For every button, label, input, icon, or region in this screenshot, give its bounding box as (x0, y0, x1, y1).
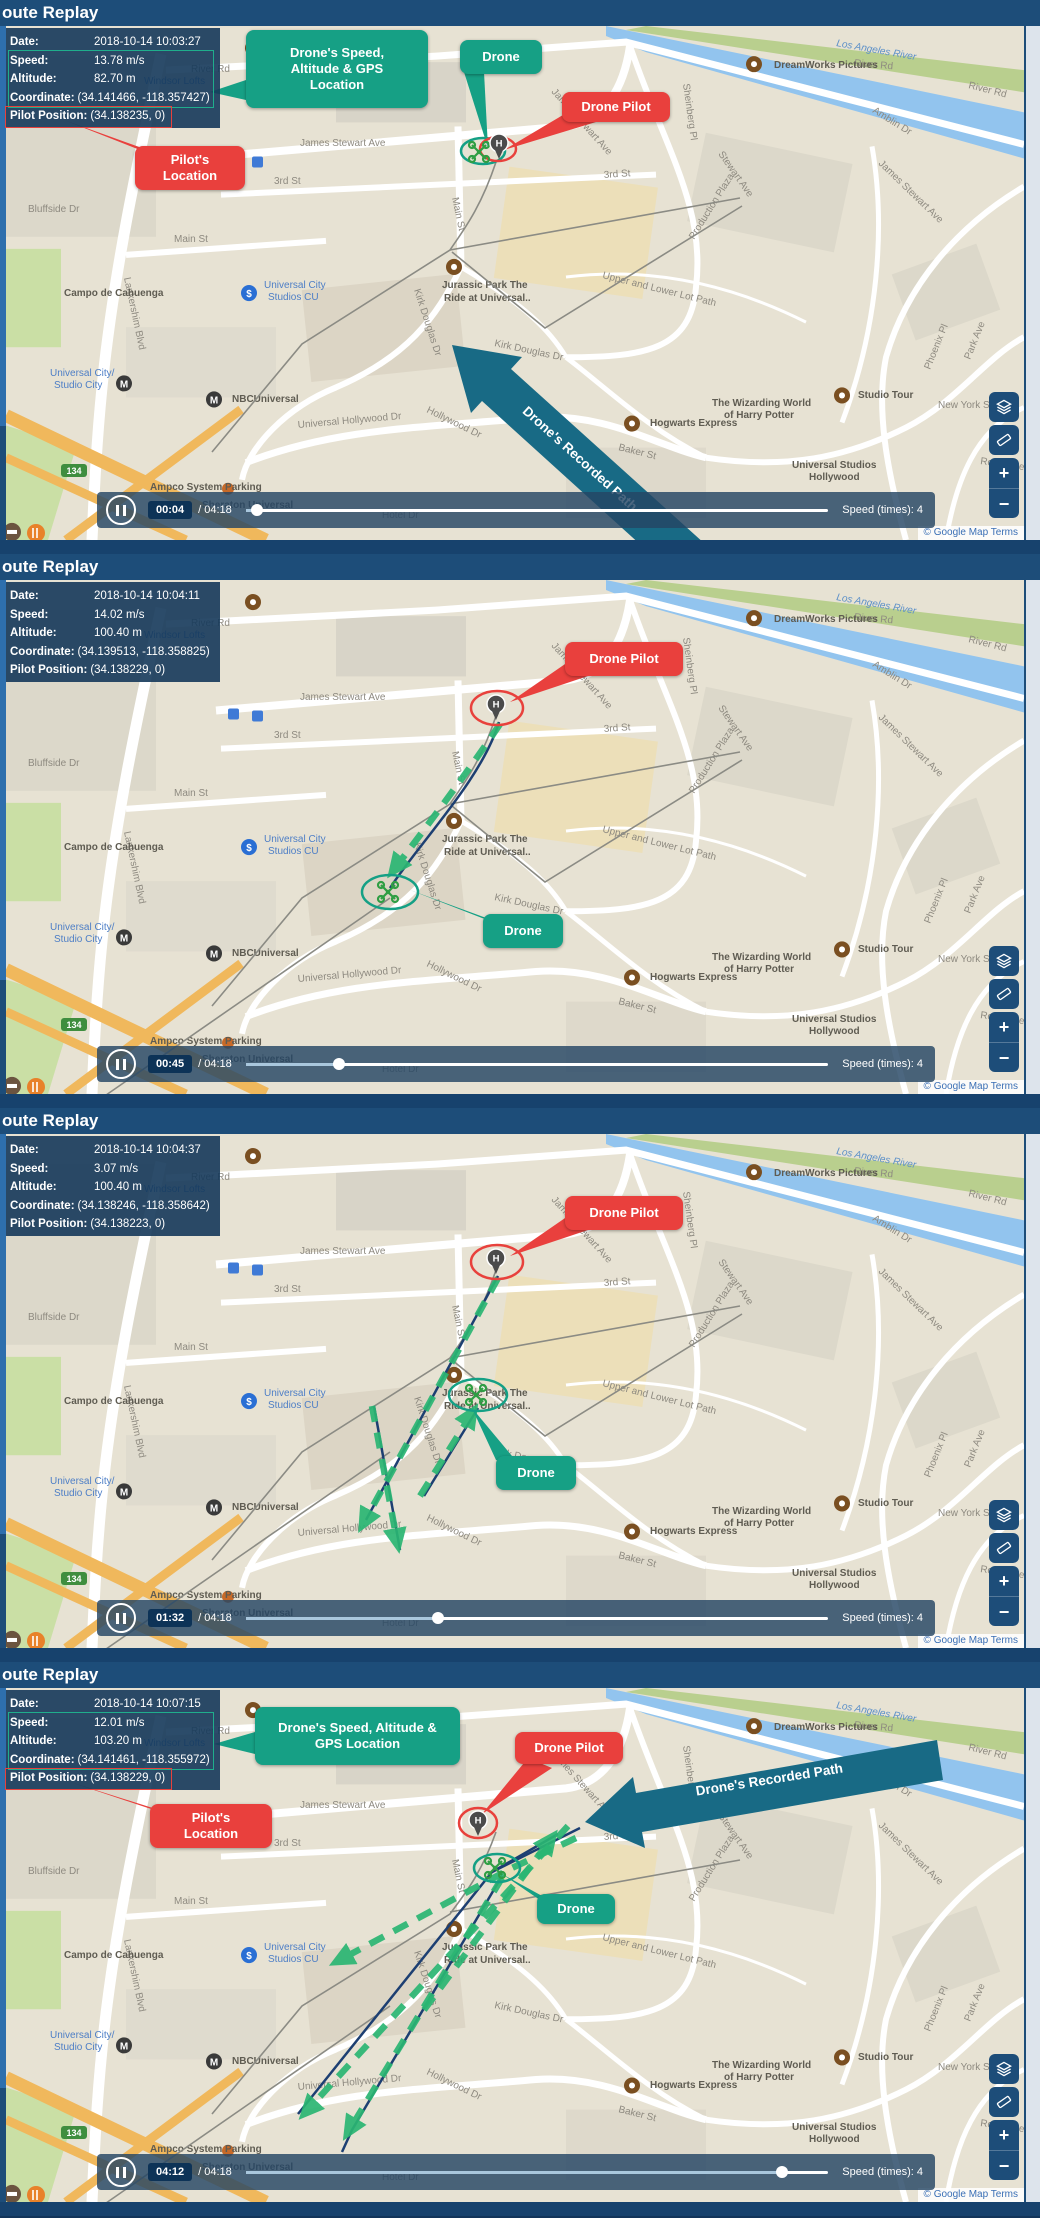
map-controls: + − (989, 1500, 1019, 1626)
date-value: 2018-10-14 10:04:11 (94, 590, 200, 602)
map-label: Studios CU (268, 846, 319, 857)
pause-button[interactable] (106, 2157, 136, 2187)
measure-button[interactable] (989, 1533, 1019, 1563)
layers-icon (993, 2058, 1015, 2080)
map-label: Hollywood (809, 1026, 860, 1037)
measure-button[interactable] (989, 979, 1019, 1009)
map-label: Ride at Universal.. (444, 847, 531, 858)
map-attribution[interactable]: © Google Map Terms (918, 1634, 1024, 1648)
telemetry-panel: Date:2018-10-14 10:04:37 Speed:3.07 m/s … (6, 1136, 220, 1236)
map-label: NBCUniversal (232, 948, 299, 959)
map-label: Main St (174, 1342, 208, 1353)
measure-button[interactable] (989, 425, 1019, 455)
map-label: New York St (938, 400, 993, 411)
pilot-position-value: (34.138229, 0) (90, 1772, 165, 1784)
map-label: 3rd St (603, 168, 631, 181)
zoom-in-button[interactable]: + (989, 458, 1019, 489)
map-label: Hollywood (809, 1580, 860, 1591)
route-replay-panel-1: oute Replay River RdLos Angeles RiverRiv… (0, 0, 1040, 554)
scrollbar-strip[interactable] (1026, 580, 1040, 1094)
window-title: oute Replay (0, 0, 1040, 26)
map-label: Studio City (54, 2042, 102, 2053)
map-label: Hollywood (809, 2134, 860, 2145)
speed-value: 13.78 m/s (94, 55, 145, 67)
map-attribution[interactable]: © Google Map Terms (918, 1080, 1024, 1094)
svg-text:H: H (493, 1254, 500, 1265)
zoom-out-button[interactable]: − (989, 1043, 1019, 1072)
ruler-icon (993, 983, 1015, 1005)
map-label: Universal City/ (50, 368, 115, 379)
total-duration: / 04:18 (198, 2166, 232, 2178)
speed-value: 14.02 m/s (94, 609, 145, 621)
zoom-out-button[interactable]: − (989, 2151, 1019, 2180)
speed-gps-callout: Drone's Speed, Altitude & GPS Location (246, 30, 428, 108)
map-label: Universal Studios (792, 2122, 877, 2133)
map-label: Main St (174, 1896, 208, 1907)
highway-shield: 134 (61, 1572, 87, 1585)
window-title: oute Replay (0, 554, 1040, 580)
svg-text:H: H (475, 1816, 482, 1827)
map-label: Jurassic Park The (442, 834, 528, 845)
map-label: Bluffside Dr (28, 1312, 80, 1323)
speed-value: 3.07 m/s (94, 1163, 138, 1175)
map-label: James Stewart Ave (300, 1246, 386, 1257)
pilot-position-value: (34.138223, 0) (90, 1218, 165, 1230)
panel-bottom-border (0, 540, 1040, 554)
layers-button[interactable] (989, 392, 1019, 422)
svg-text:H: H (493, 700, 500, 711)
drone-pilot-callout: Drone Pilot (565, 642, 683, 676)
map-label: New York St (938, 1508, 993, 1519)
coordinate-value: (34.138246, -118.358642) (78, 1200, 210, 1212)
map-label: New York St (938, 954, 993, 965)
map-label: 3rd St (274, 1838, 301, 1849)
map-label: Universal City (264, 1942, 326, 1953)
map-label: NBCUniversal (232, 2056, 299, 2067)
map-label: Studios CU (268, 292, 319, 303)
timeline-slider[interactable] (246, 1063, 829, 1066)
zoom-out-button[interactable]: − (989, 489, 1019, 518)
highway-shield: 134 (61, 2126, 87, 2139)
map-label: DreamWorks Pictures (774, 60, 878, 71)
speed-multiplier-label: Speed (times): 4 (842, 1612, 923, 1624)
map-label: Universal City/ (50, 922, 115, 933)
coordinate-value: (34.141466, -118.357427) (78, 92, 210, 104)
telemetry-panel: Date:2018-10-14 10:03:27 Speed:13.78 m/s… (6, 28, 220, 128)
altitude-value: 82.70 m (94, 73, 136, 85)
map-label: The Wizarding World (712, 2060, 811, 2071)
layers-button[interactable] (989, 946, 1019, 976)
layers-icon (993, 396, 1015, 418)
map-attribution[interactable]: © Google Map Terms (918, 2188, 1024, 2202)
map-label: Studio Tour (858, 2052, 913, 2063)
slider-thumb[interactable] (333, 1058, 345, 1070)
map-label: Studio City (54, 380, 102, 391)
map-label: 3rd St (603, 1276, 631, 1289)
pilot-position-value: (34.138235, 0) (90, 110, 165, 122)
map-controls: + − (989, 392, 1019, 518)
map-label: NBCUniversal (232, 394, 299, 405)
pilot-location-callout: Pilot's Location (150, 1804, 272, 1848)
pause-button[interactable] (106, 1603, 136, 1633)
speed-multiplier-label: Speed (times): 4 (842, 1058, 923, 1070)
map-label: Studio City (54, 934, 102, 945)
map-label: Universal City (264, 834, 326, 845)
telemetry-panel: Date:2018-10-14 10:07:15 Speed:12.01 m/s… (6, 1690, 220, 1790)
map-label: DreamWorks Pictures (774, 1168, 878, 1179)
map-label: Universal Studios (792, 460, 877, 471)
map-label: Jurassic Park The (442, 280, 528, 291)
map-controls: + − (989, 946, 1019, 1072)
elapsed-time: 00:45 (148, 1055, 192, 1073)
drone-pilot-callout: Drone Pilot (562, 92, 670, 122)
svg-text:H: H (496, 139, 503, 150)
map-label: Campo de Cahuenga (64, 288, 164, 299)
layers-button[interactable] (989, 2054, 1019, 2084)
scrollbar-strip[interactable] (1026, 1688, 1040, 2202)
slider-thumb[interactable] (251, 504, 263, 516)
timeline-slider[interactable] (246, 509, 829, 512)
drone-callout: Drone (483, 914, 563, 948)
map-label: Campo de Cahuenga (64, 842, 164, 853)
slider-thumb[interactable] (432, 1612, 444, 1624)
map-label: 3rd St (274, 730, 301, 741)
highway-shield: 134 (61, 464, 87, 477)
playback-bar: 01:32 / 04:18 Speed (times): 4 (97, 1600, 935, 1636)
pause-button[interactable] (106, 495, 136, 525)
map-label: James Stewart Ave (300, 138, 386, 149)
zoom-out-button[interactable]: − (989, 1597, 1019, 1626)
map-label: DreamWorks Pictures (774, 614, 878, 625)
timeline-slider[interactable] (246, 2171, 829, 2174)
map-label: Universal City/ (50, 2030, 115, 2041)
map-label: Campo de Cahuenga (64, 1950, 164, 1961)
map-label: Studios CU (268, 1400, 319, 1411)
map-label: Hogwarts Express (650, 1526, 738, 1537)
map-label: James Stewart Ave (300, 1800, 386, 1811)
ruler-icon (993, 2091, 1015, 2113)
map-label: Universal City (264, 280, 326, 291)
drone-pilot-callout: Drone Pilot (565, 1196, 683, 1230)
pilot-location-callout: Pilot's Location (135, 146, 245, 190)
map-label: Universal City/ (50, 1476, 115, 1487)
coordinate-value: (34.141461, -118.355972) (78, 1754, 210, 1766)
total-duration: / 04:18 (198, 1058, 232, 1070)
drone-pilot-callout: Drone Pilot (515, 1732, 623, 1764)
total-duration: / 04:18 (198, 1612, 232, 1624)
map-label: Hogwarts Express (650, 2080, 738, 2091)
map-label: Main St (174, 788, 208, 799)
route-replay-panel-2: oute Replay River RdLos Angeles RiverRiv… (0, 554, 1040, 1108)
panel-bottom-border (0, 2202, 1040, 2216)
telemetry-panel: Date:2018-10-14 10:04:11 Speed:14.02 m/s… (6, 582, 220, 682)
altitude-value: 100.40 m (94, 627, 142, 639)
scrollbar-strip[interactable] (1026, 26, 1040, 540)
zoom-in-button[interactable]: + (989, 2120, 1019, 2151)
map-label: DreamWorks Pictures (774, 1722, 878, 1733)
map-label: Universal Studios (792, 1568, 877, 1579)
svg-text:134: 134 (66, 466, 81, 476)
svg-text:134: 134 (66, 1574, 81, 1584)
map-label: 3rd St (274, 176, 301, 187)
map-label: Bluffside Dr (28, 204, 80, 215)
window-title: oute Replay (0, 1108, 1040, 1134)
scrollbar-strip[interactable] (1026, 1134, 1040, 1648)
date-value: 2018-10-14 10:07:15 (94, 1698, 201, 1710)
speed-multiplier-label: Speed (times): 4 (842, 504, 923, 516)
map-label: Universal City (264, 1388, 326, 1399)
drone-callout: Drone (460, 40, 542, 74)
total-duration: / 04:18 (198, 504, 232, 516)
panel-bottom-border (0, 1648, 1040, 1662)
zoom-in-button[interactable]: + (989, 1566, 1019, 1597)
map-controls: + − (989, 2054, 1019, 2180)
route-replay-panel-3: oute Replay River RdLos Angeles RiverRiv… (0, 1108, 1040, 1662)
route-replay-panel-4: oute Replay River RdLos Angeles RiverRiv… (0, 1662, 1040, 2216)
map-label: Studio Tour (858, 1498, 913, 1509)
layers-icon (993, 1504, 1015, 1526)
window-title: oute Replay (0, 1662, 1040, 1688)
layers-icon (993, 950, 1015, 972)
map-label: Hollywood (809, 472, 860, 483)
map-label: 3rd St (603, 722, 631, 735)
map-label: Bluffside Dr (28, 1866, 80, 1877)
map-attribution[interactable]: © Google Map Terms (918, 526, 1024, 540)
map-label: The Wizarding World (712, 398, 811, 409)
pause-button[interactable] (106, 1049, 136, 1079)
svg-text:134: 134 (66, 2128, 81, 2138)
playback-bar: 00:45 / 04:18 Speed (times): 4 (97, 1046, 935, 1082)
speed-multiplier-label: Speed (times): 4 (842, 2166, 923, 2178)
pilot-position-value: (34.138229, 0) (90, 664, 165, 676)
map-label: Main St (174, 234, 208, 245)
zoom-in-button[interactable]: + (989, 1012, 1019, 1043)
map-label: Universal Studios (792, 1014, 877, 1025)
map-label: NBCUniversal (232, 1502, 299, 1513)
speed-gps-callout: Drone's Speed, Altitude & GPS Location (255, 1707, 460, 1765)
svg-text:134: 134 (66, 1020, 81, 1030)
map-label: Studio Tour (858, 944, 913, 955)
map-label: New York St (938, 2062, 993, 2073)
map-label: The Wizarding World (712, 952, 811, 963)
drone-callout: Drone (537, 1894, 615, 1924)
map-label: Hogwarts Express (650, 418, 738, 429)
altitude-value: 100.40 m (94, 1181, 142, 1193)
panel-bottom-border (0, 1094, 1040, 1108)
layers-button[interactable] (989, 1500, 1019, 1530)
map-label: Bluffside Dr (28, 758, 80, 769)
ruler-icon (993, 1537, 1015, 1559)
map-label: Campo de Cahuenga (64, 1396, 164, 1407)
speed-value: 12.01 m/s (94, 1717, 145, 1729)
date-value: 2018-10-14 10:04:37 (94, 1144, 201, 1156)
map-label: The Wizarding World (712, 1506, 811, 1517)
highway-shield: 134 (61, 1018, 87, 1031)
elapsed-time: 04:12 (148, 2163, 192, 2181)
measure-button[interactable] (989, 2087, 1019, 2117)
elapsed-time: 00:04 (148, 501, 192, 519)
elapsed-time: 01:32 (148, 1609, 192, 1627)
drone-callout: Drone (496, 1456, 576, 1490)
map-label: James Stewart Ave (300, 692, 386, 703)
coordinate-value: (34.139513, -118.358825) (78, 646, 210, 658)
map-label: Studio Tour (858, 390, 913, 401)
altitude-value: 103.20 m (94, 1735, 142, 1747)
map-label: Hogwarts Express (650, 972, 738, 983)
playback-bar: 00:04 / 04:18 Speed (times): 4 (97, 492, 935, 528)
ruler-icon (993, 429, 1015, 451)
map-label: Studio City (54, 1488, 102, 1499)
playback-bar: 04:12 / 04:18 Speed (times): 4 (97, 2154, 935, 2190)
slider-thumb[interactable] (776, 2166, 788, 2178)
map-label: Ride at Universal.. (444, 293, 531, 304)
map-label: 3rd St (274, 1284, 301, 1295)
timeline-slider[interactable] (246, 1617, 829, 1620)
date-value: 2018-10-14 10:03:27 (94, 36, 201, 48)
map-label: Studios CU (268, 1954, 319, 1965)
